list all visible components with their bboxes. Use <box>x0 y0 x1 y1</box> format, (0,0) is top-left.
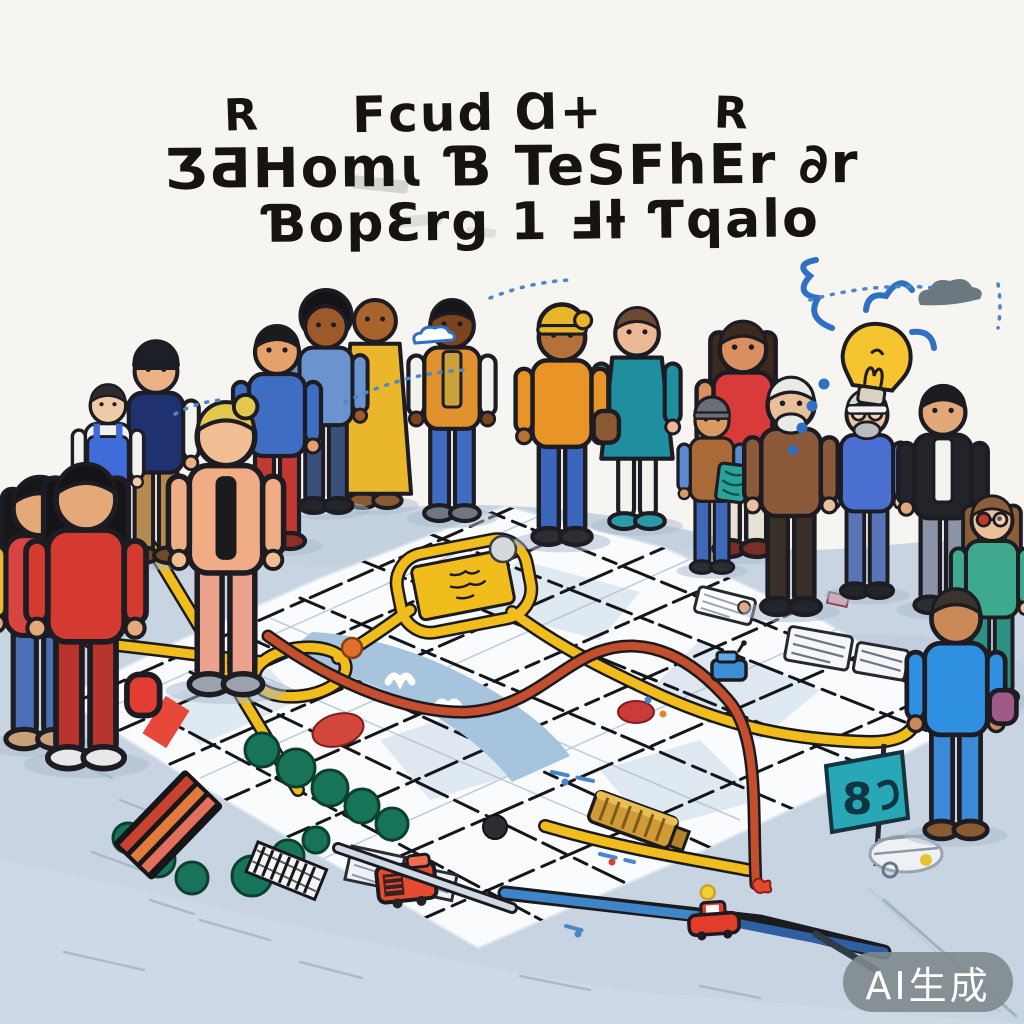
mini-cloud-icon <box>414 327 454 343</box>
illustration-canvas: R Fcud Ɑ+ R ƷƋHomɩ Ɓ TeSFhEr ∂r ƁopƐrg 1… <box>0 0 1024 1024</box>
orange-ball <box>342 638 362 658</box>
dark-ball <box>483 815 507 839</box>
lightbulb-icon <box>836 320 914 409</box>
ai-watermark-text: AI生成 <box>865 955 990 1010</box>
cloud-icon <box>918 279 981 305</box>
red-bird <box>752 878 771 893</box>
flag-number: 8 <box>842 774 873 825</box>
gray-ball <box>490 536 516 562</box>
ai-watermark-badge: AI生成 <box>843 952 1013 1012</box>
title-line3: ƁopƐrg 1 Ⅎƚ Ƭqalo <box>30 187 1024 258</box>
title-letter-left: R <box>223 89 261 141</box>
red-scribble <box>618 701 654 723</box>
